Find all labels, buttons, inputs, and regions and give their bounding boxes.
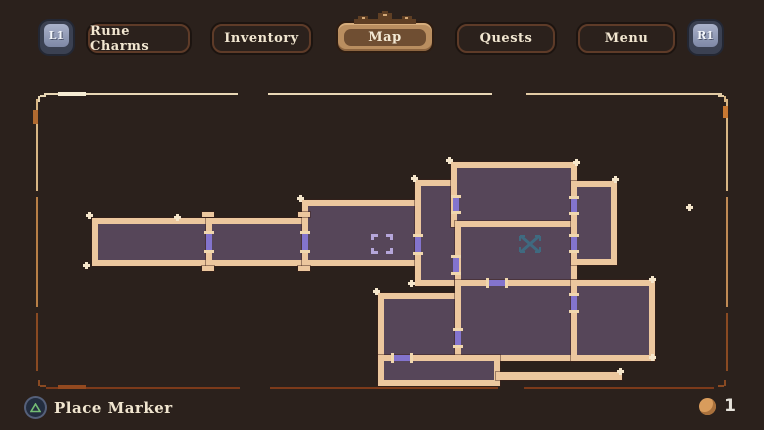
map-room-c — [302, 200, 421, 266]
wall-sparkle-decoration — [411, 175, 418, 182]
map-screen: L1 Rune Charms Inventory Map Quests Menu… — [0, 0, 764, 430]
marker-count-value: 1 — [724, 396, 736, 416]
border-segment — [38, 96, 40, 102]
border-segment — [268, 93, 492, 95]
border-segment — [723, 106, 728, 118]
marker-token-icon — [699, 398, 716, 415]
border-segment — [58, 385, 86, 389]
wall-sparkle-decoration — [686, 204, 693, 211]
wall-sparkle-decoration — [649, 354, 656, 361]
map-room-n — [571, 280, 655, 361]
bottom-bar: Place Marker 1 — [0, 394, 764, 430]
r1-label: R1 — [693, 24, 718, 47]
border-segment — [270, 387, 498, 389]
border-segment — [40, 385, 46, 387]
map-room-b — [206, 218, 308, 266]
map-panel — [0, 64, 764, 394]
map-door — [415, 237, 421, 252]
marker-count: 1 — [699, 396, 736, 416]
border-segment — [33, 110, 38, 124]
wall-sparkle-decoration — [408, 280, 415, 287]
wall-sparkle-decoration — [617, 368, 624, 375]
wall-sparkle-decoration — [86, 212, 93, 219]
place-marker-label: Place Marker — [54, 399, 173, 417]
tab-rune-charms[interactable]: Rune Charms — [88, 24, 190, 53]
map-wall-segment — [298, 266, 310, 271]
wall-sparkle-decoration — [612, 176, 619, 183]
map-door — [571, 296, 577, 310]
map-door — [206, 234, 212, 250]
border-segment — [724, 96, 726, 102]
shoulder-button-r1[interactable]: R1 — [689, 21, 722, 54]
border-segment — [36, 313, 38, 371]
map-door — [571, 237, 577, 250]
map-door — [489, 280, 505, 286]
place-marker-button[interactable]: Place Marker — [26, 398, 173, 417]
map-room-e — [451, 162, 577, 227]
tab-map-label: Map — [344, 29, 426, 46]
border-segment — [726, 313, 728, 371]
border-segment — [526, 93, 722, 95]
border-segment — [524, 387, 714, 389]
border-segment — [38, 380, 40, 386]
wall-sparkle-decoration — [297, 195, 304, 202]
map-room-f — [455, 221, 577, 286]
map-wall-segment — [298, 212, 310, 217]
player-position-icon — [517, 233, 543, 259]
map-door — [455, 331, 461, 345]
shoulder-button-l1[interactable]: L1 — [40, 21, 73, 54]
wall-sparkle-decoration — [446, 157, 453, 164]
map-wall-segment — [202, 212, 214, 217]
tab-menu[interactable]: Menu — [578, 24, 675, 53]
gamepad-triangle-button-icon — [26, 398, 45, 417]
wall-sparkle-decoration — [649, 276, 656, 283]
tab-map[interactable]: Map — [336, 21, 434, 53]
map-door — [453, 258, 459, 272]
map-door — [302, 234, 308, 250]
map-wall-segment — [202, 266, 214, 271]
border-segment — [36, 197, 38, 307]
crown-ornament-icon — [352, 11, 418, 24]
map-door — [453, 198, 459, 211]
tab-quests[interactable]: Quests — [457, 24, 555, 53]
wall-sparkle-decoration — [573, 159, 580, 166]
map-door — [571, 199, 577, 212]
map-wall-segment — [496, 372, 622, 380]
border-segment — [58, 92, 86, 96]
map-room-m — [455, 280, 577, 361]
map-room-k — [378, 293, 461, 361]
border-segment — [726, 197, 728, 307]
wall-sparkle-decoration — [373, 288, 380, 295]
border-segment — [40, 95, 46, 97]
border-segment — [724, 380, 726, 386]
map-cursor-icon[interactable] — [371, 234, 393, 258]
wall-sparkle-decoration — [83, 262, 90, 269]
map-door — [394, 355, 410, 361]
tab-inventory[interactable]: Inventory — [212, 24, 311, 53]
top-bar: L1 Rune Charms Inventory Map Quests Menu… — [0, 0, 764, 64]
wall-sparkle-decoration — [174, 214, 181, 221]
l1-label: L1 — [44, 24, 69, 47]
map-room-a — [92, 218, 212, 266]
